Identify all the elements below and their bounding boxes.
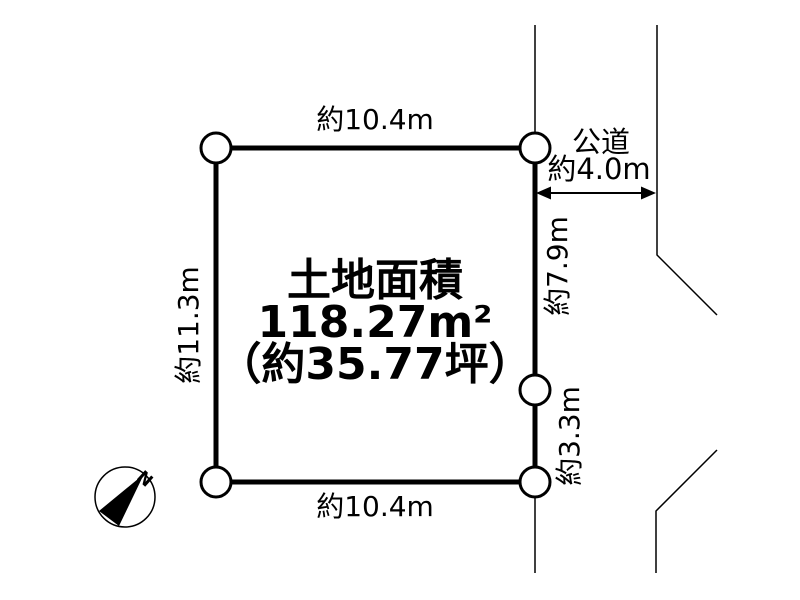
boundary-marker-bottom-right [520, 467, 550, 497]
road-width-label: 約4.0m [547, 152, 650, 186]
road-width-arrow [536, 187, 656, 200]
road-edge-far-top [657, 25, 717, 315]
right-upper-dimension-label: 約7.9m [541, 216, 574, 316]
arrowhead-right-icon [641, 187, 656, 200]
compass: N [95, 467, 156, 527]
left-dimension-label: 約11.3m [172, 266, 205, 384]
land-area-tsubo: （約35.77坪） [217, 339, 532, 390]
right-lower-dimension-label: 約3.3m [553, 386, 586, 486]
site-plan-diagram: 約10.4m 約10.4m 約11.3m 約7.9m 約3.3m 公道 約4.0… [0, 0, 800, 600]
top-dimension-label: 約10.4m [316, 103, 434, 136]
boundary-marker-top-right [520, 133, 550, 163]
bottom-dimension-label: 約10.4m [316, 490, 434, 523]
arrowhead-left-icon [536, 187, 551, 200]
boundary-marker-top-left [201, 133, 231, 163]
boundary-marker-bottom-left [201, 467, 231, 497]
road-edge-far-bottom [656, 450, 717, 573]
